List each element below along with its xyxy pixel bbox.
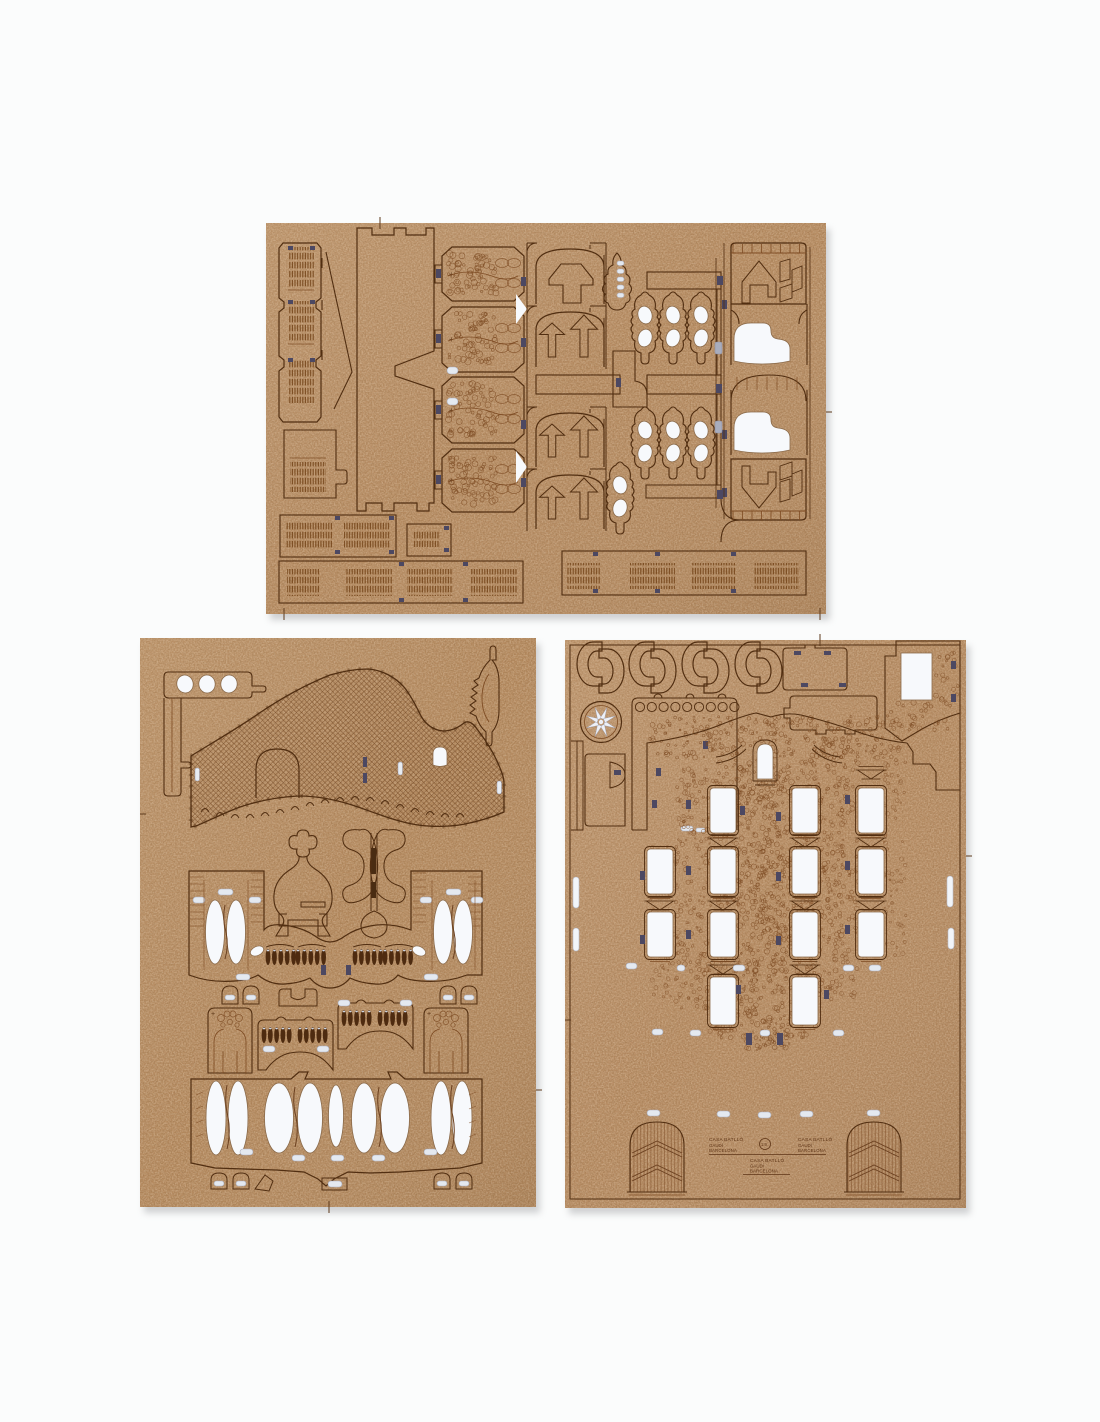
svg-text:BARCELONA: BARCELONA: [750, 1169, 778, 1174]
svg-text:BARCELONA: BARCELONA: [709, 1148, 737, 1153]
svg-text:1:9: 1:9: [761, 1142, 767, 1147]
svg-text:BARCELONA: BARCELONA: [798, 1148, 826, 1153]
svg-text:+: +: [211, 1011, 215, 1018]
svg-text:+: +: [427, 1011, 431, 1018]
svg-text:CASA BATLLÓ: CASA BATLLÓ: [798, 1136, 832, 1143]
svg-text:CASA BATLLÓ: CASA BATLLÓ: [709, 1136, 743, 1143]
